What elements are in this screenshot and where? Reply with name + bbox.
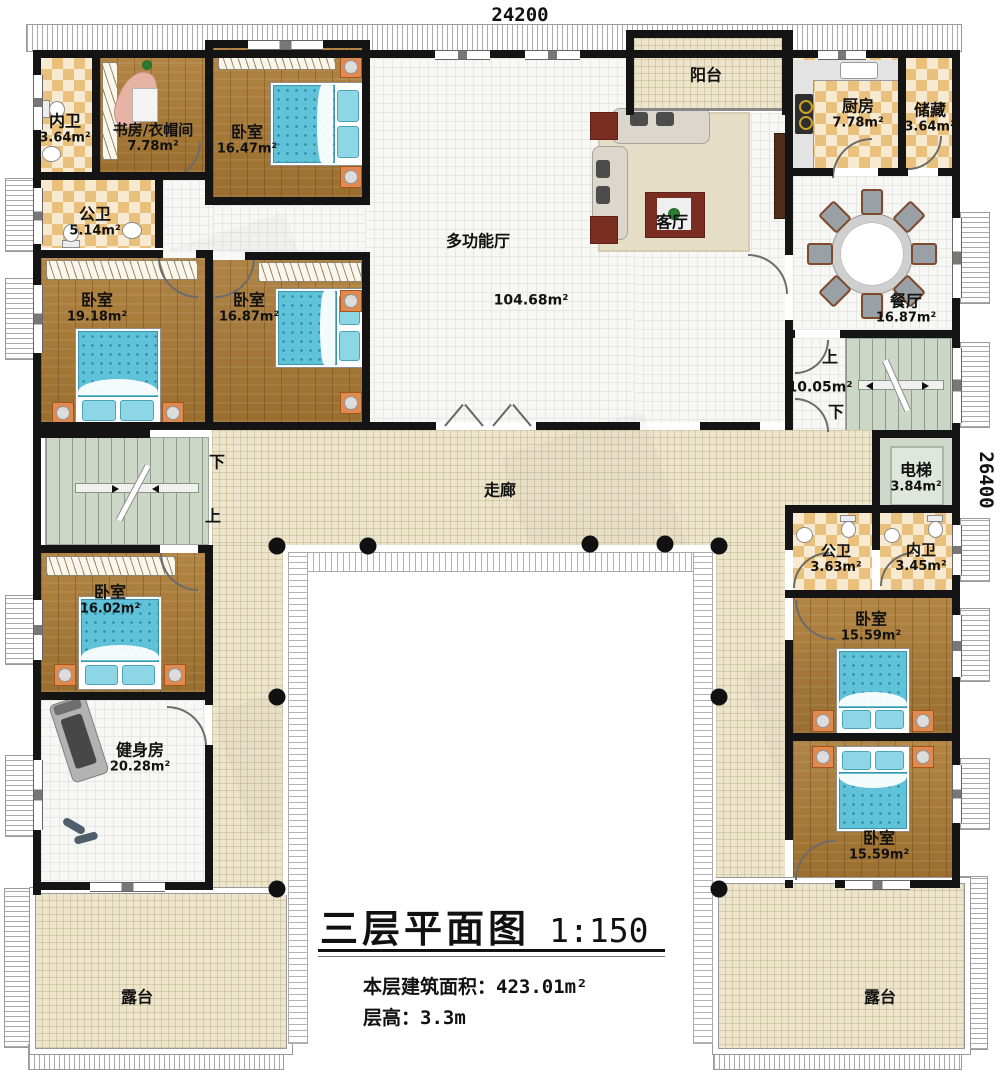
column xyxy=(657,536,674,553)
pillow xyxy=(82,400,116,421)
dimension-right: 26400 xyxy=(975,451,997,508)
room-label-terrace-right: 露台 xyxy=(864,987,896,1006)
wall xyxy=(872,438,880,508)
window xyxy=(952,348,962,423)
stair-arrow xyxy=(112,485,119,493)
room-label-living: 客厅 xyxy=(656,212,688,231)
room-label-gongwei-514: 公卫 5.14m² xyxy=(69,205,120,240)
pillow xyxy=(875,710,904,729)
sill-right-5 xyxy=(960,758,990,830)
window xyxy=(33,600,43,660)
floor-plan: 内卫 3.64m² 书房/衣帽间 7.78m² 卧室 16.47m² 公卫 5.… xyxy=(0,0,1000,1078)
window xyxy=(952,525,962,575)
building-area-value: 423.01m² xyxy=(496,976,588,998)
burner xyxy=(799,100,813,114)
room-label-bedroom-1559b: 卧室 15.59m² xyxy=(849,829,909,864)
stair-arrow xyxy=(866,382,873,390)
plant xyxy=(142,60,152,70)
nightstand xyxy=(912,710,934,732)
wall xyxy=(872,430,960,438)
pillow xyxy=(337,126,359,158)
stair-arrow xyxy=(922,382,929,390)
stairs-up-label-left: 上 xyxy=(205,506,221,525)
nightstand xyxy=(54,664,76,686)
wall xyxy=(840,330,952,338)
room-label-bedroom-1918: 卧室 19.18m² xyxy=(67,291,127,326)
wall xyxy=(92,58,100,178)
wall xyxy=(33,430,150,438)
sofa-cushion xyxy=(596,186,610,204)
pillow xyxy=(842,710,871,729)
wall xyxy=(33,545,160,553)
nightstand xyxy=(340,56,362,78)
pillow xyxy=(875,751,904,770)
stairs-down-label-right: 下 xyxy=(828,402,844,421)
nightstand xyxy=(340,290,362,312)
window xyxy=(845,880,910,890)
column xyxy=(269,538,286,555)
sill-right-1 xyxy=(960,212,990,304)
sink xyxy=(796,527,813,543)
column xyxy=(711,881,728,898)
window xyxy=(33,285,43,353)
bed xyxy=(270,82,364,166)
courtyard-band-right xyxy=(693,552,713,1044)
wall xyxy=(205,545,213,705)
wall xyxy=(785,640,793,733)
wall xyxy=(952,50,960,880)
terrace-left xyxy=(30,888,292,1054)
toilet xyxy=(841,521,856,538)
bed-sheet xyxy=(317,85,333,163)
eave-top xyxy=(26,24,962,52)
floor-elevator-lobby xyxy=(785,430,880,513)
sill-right-4 xyxy=(960,608,990,682)
room-label-neiwei-1: 内卫 3.64m² xyxy=(39,112,90,147)
column xyxy=(711,689,728,706)
room-label-bedroom-1647: 卧室 16.47m² xyxy=(217,123,277,158)
balcony-door-line xyxy=(634,108,782,111)
room-label-bedroom-1687: 卧室 16.87m² xyxy=(219,291,279,326)
room-label-storage: 储藏 3.64m² xyxy=(904,101,955,136)
sink xyxy=(42,146,61,162)
wall xyxy=(41,172,213,180)
wall xyxy=(33,422,213,430)
floor-height-value: 3.3m xyxy=(420,1007,466,1029)
sill-left-3 xyxy=(5,595,35,665)
bed-sheet xyxy=(320,291,335,365)
wall xyxy=(205,252,213,430)
column xyxy=(269,881,286,898)
pillow xyxy=(122,665,155,685)
nightstand xyxy=(812,746,834,768)
pillow xyxy=(339,331,360,361)
wall xyxy=(833,590,841,598)
bed xyxy=(836,746,910,832)
window xyxy=(248,40,323,50)
stairs-area-label-right: 10.05m² xyxy=(787,380,852,397)
stairs-up-label-right: 上 xyxy=(822,347,838,366)
closet xyxy=(258,262,362,282)
plan-scale: 1:150 xyxy=(549,911,648,950)
window xyxy=(525,50,580,60)
building-area-label: 本层建筑面积： xyxy=(363,976,496,998)
window xyxy=(952,218,962,298)
window xyxy=(33,188,43,244)
dimension-top: 24200 xyxy=(491,4,548,26)
wall xyxy=(362,40,370,205)
window xyxy=(952,765,962,823)
window xyxy=(818,50,866,60)
window xyxy=(435,50,490,60)
bed xyxy=(836,648,910,734)
room-label-dining: 餐厅 16.87m² xyxy=(876,292,936,327)
pillow xyxy=(120,400,154,421)
stair-arrow xyxy=(152,485,159,493)
wall xyxy=(536,422,640,430)
wall xyxy=(33,692,213,700)
sill-left-2 xyxy=(5,278,35,360)
room-label-multihall: 多功能厅 xyxy=(446,231,510,250)
column xyxy=(360,538,377,555)
wall xyxy=(938,168,952,176)
room-label-kitchen: 厨房 7.78m² xyxy=(832,97,883,132)
chair xyxy=(807,243,833,265)
chair xyxy=(861,189,883,215)
column xyxy=(711,538,728,555)
nightstand xyxy=(340,392,362,414)
window xyxy=(90,882,165,892)
nightstand xyxy=(912,746,934,768)
room-label-balcony: 阳台 xyxy=(690,65,722,84)
sink xyxy=(122,222,142,239)
title-underline-thin xyxy=(318,956,665,957)
title-block: 三层平面图 1:150 xyxy=(320,898,648,953)
burner xyxy=(799,116,813,130)
sill-right-3 xyxy=(960,518,990,582)
study-desk xyxy=(132,88,158,122)
pillow xyxy=(85,665,118,685)
wall xyxy=(785,590,960,598)
eave-terrace-left xyxy=(4,888,32,1048)
side-table xyxy=(590,112,618,140)
kitchen-sink xyxy=(840,62,878,79)
title-underline xyxy=(318,949,665,952)
wall xyxy=(785,513,793,550)
sill-left-1 xyxy=(5,178,35,252)
room-label-bedroom-1559a: 卧室 15.59m² xyxy=(841,610,901,645)
wall xyxy=(785,330,795,338)
wall xyxy=(362,252,370,430)
room-label-corridor: 走廊 xyxy=(484,480,516,499)
floor-height-line: 层高：3.3m xyxy=(363,1003,466,1030)
courtyard-band-left xyxy=(288,552,308,1044)
closet xyxy=(46,556,176,576)
nightstand xyxy=(164,664,186,686)
wall xyxy=(205,745,213,890)
courtyard-band-top xyxy=(288,552,713,572)
chair xyxy=(911,243,937,265)
wall xyxy=(33,250,163,258)
room-label-terrace-left: 露台 xyxy=(121,987,153,1006)
wall xyxy=(155,180,163,248)
sofa-cushion xyxy=(656,112,674,126)
room-label-elevator: 电梯 3.84m² xyxy=(890,461,941,496)
pillow xyxy=(337,90,359,122)
wall xyxy=(205,40,213,205)
nightstand xyxy=(812,710,834,732)
column xyxy=(582,536,599,553)
terrace-right xyxy=(713,878,970,1054)
sill-right-2 xyxy=(960,342,990,428)
room-label-gongwei-363: 公卫 3.63m² xyxy=(810,542,861,576)
wall xyxy=(207,197,370,205)
side-table xyxy=(590,216,618,244)
wall-balcony xyxy=(626,30,634,115)
wall xyxy=(785,880,793,888)
nightstand xyxy=(52,402,74,424)
plan-title: 三层平面图 xyxy=(320,907,530,951)
column xyxy=(269,689,286,706)
room-label-bedroom-1602: 卧室 16.02m² xyxy=(80,583,140,618)
toilet xyxy=(928,521,943,538)
wall xyxy=(878,168,908,176)
bed xyxy=(75,328,161,426)
stairs-down-label-left: 下 xyxy=(209,452,225,471)
wall xyxy=(785,505,960,513)
window xyxy=(33,760,43,830)
nightstand xyxy=(162,402,184,424)
courtyard xyxy=(283,545,716,895)
room-label-neiwei-345: 内卫 3.45m² xyxy=(895,541,946,575)
room-label-multihall-area: 104.68m² xyxy=(494,293,569,310)
wall-balcony xyxy=(626,30,790,38)
sill-left-4 xyxy=(5,755,35,837)
wall xyxy=(370,422,436,430)
nightstand xyxy=(340,166,362,188)
wall xyxy=(872,513,880,550)
floor-height-label: 层高： xyxy=(363,1007,420,1029)
wall xyxy=(700,422,760,430)
wall xyxy=(785,741,793,840)
treadmill-belt xyxy=(60,713,97,769)
room-label-study: 书房/衣帽间 7.78m² xyxy=(113,121,193,155)
pillow xyxy=(842,751,871,770)
wall xyxy=(245,252,370,260)
wall xyxy=(785,733,960,741)
window xyxy=(952,615,962,677)
wall xyxy=(785,168,833,176)
wall xyxy=(213,422,370,430)
building-area-line: 本层建筑面积：423.01m² xyxy=(363,972,588,999)
wall xyxy=(785,30,793,255)
room-label-gym: 健身房 20.28m² xyxy=(110,741,170,776)
sofa-cushion xyxy=(596,160,610,178)
